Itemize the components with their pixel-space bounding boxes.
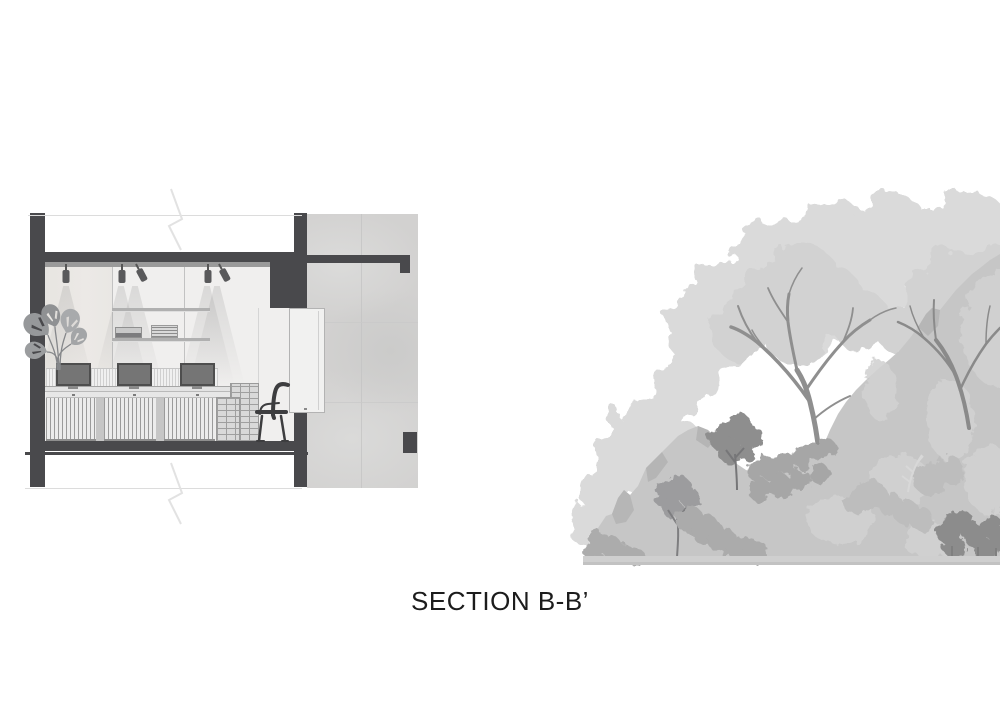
wall-shelf xyxy=(112,308,210,311)
cabinet-gap xyxy=(96,398,104,441)
ceiling-slab xyxy=(30,252,307,262)
light-fern xyxy=(902,455,923,492)
architectural-sheet: SECTION B-B’ xyxy=(0,0,1000,707)
cut-line-top xyxy=(28,215,302,216)
drawer-stack xyxy=(217,398,239,441)
section-title: SECTION B-B’ xyxy=(380,586,620,617)
drawer-handle xyxy=(196,394,199,396)
slatted-cabinet xyxy=(164,398,215,441)
roof-beam xyxy=(307,255,410,263)
wall-end-block xyxy=(403,432,417,453)
monitor-stand xyxy=(68,386,78,389)
shelf-equipment xyxy=(115,327,142,338)
building-section xyxy=(0,0,460,560)
ground-strip xyxy=(583,556,1000,562)
floor-line xyxy=(25,452,308,455)
monitor xyxy=(180,363,215,386)
slatted-cabinet xyxy=(104,398,156,441)
monitor-stand xyxy=(129,386,139,389)
door-panel-edge xyxy=(318,311,319,410)
door-header xyxy=(270,258,294,308)
slope-vegetation xyxy=(583,413,1000,566)
wall-shelf xyxy=(112,338,210,341)
beam-end-block xyxy=(400,263,410,273)
rock-shading xyxy=(612,308,940,524)
monitor xyxy=(117,363,152,386)
large-tree-canopy xyxy=(710,240,1000,365)
right-tree-branches xyxy=(898,300,1000,428)
slatted-cabinet xyxy=(46,398,96,441)
ground-line xyxy=(583,562,1000,565)
background-tree-canopy xyxy=(568,190,1000,562)
floor-slab xyxy=(30,441,307,451)
cut-line-bottom xyxy=(25,488,302,489)
drawer-handle xyxy=(72,394,75,396)
cabinet-gap xyxy=(156,398,164,441)
hill-light-patches xyxy=(806,272,1000,558)
monitor-stand xyxy=(192,386,202,389)
drawer-handle xyxy=(133,394,136,396)
hill-silhouette xyxy=(583,254,1000,563)
shelf-equipment xyxy=(151,325,178,338)
large-tree-branches xyxy=(731,268,896,453)
door-panel xyxy=(289,308,325,413)
door-handle-mark xyxy=(304,408,307,410)
door-recess-edge xyxy=(258,308,259,412)
monitor xyxy=(56,363,91,386)
